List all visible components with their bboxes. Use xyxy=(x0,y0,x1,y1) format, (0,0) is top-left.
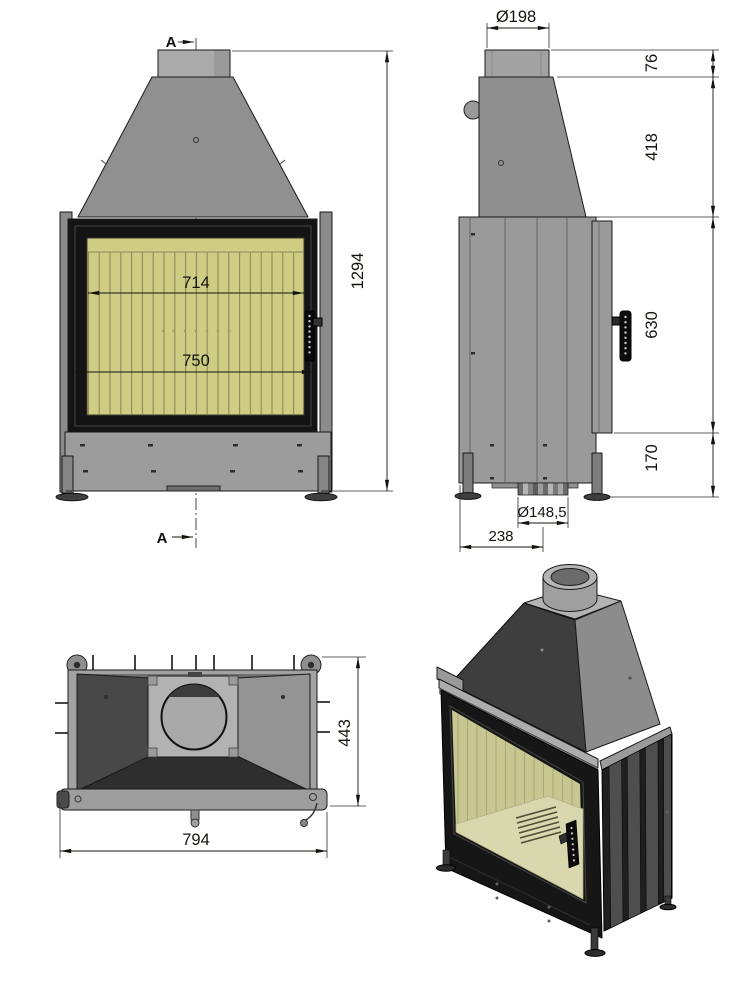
dim-base-height-label: 170 xyxy=(643,444,661,472)
isometric-view xyxy=(437,565,677,957)
smoke-hood xyxy=(78,77,308,217)
dim-glass-width-label: 750 xyxy=(182,352,210,370)
door-handle xyxy=(305,311,322,361)
dim-depth-label: 443 xyxy=(336,719,354,747)
front-bar xyxy=(60,789,327,810)
dim-flue-diameter-label: Ø198 xyxy=(496,8,536,26)
front-latch xyxy=(191,810,199,827)
section-marker-top: A xyxy=(166,34,177,51)
top-view: 443 794 xyxy=(55,655,366,858)
base-front xyxy=(65,432,331,491)
flue-collar-side xyxy=(485,50,549,77)
dim-hood-height-label: 418 xyxy=(643,133,661,161)
dim-flue-diameter: Ø198 xyxy=(487,8,549,48)
section-marker-top-group: A xyxy=(166,34,194,51)
dim-collar-height-label: 76 xyxy=(643,54,661,72)
dim-air-inlet-diameter-label: Ø148,5 xyxy=(517,504,566,521)
dim-overall-height-label: 1294 xyxy=(349,253,367,290)
iso-hood-right-face xyxy=(575,601,660,752)
side-view: Ø198 xyxy=(455,8,719,552)
cable-ball xyxy=(301,820,308,827)
firebox-body-side xyxy=(459,217,596,483)
section-marker-bottom: A xyxy=(157,530,168,547)
door-side-panel xyxy=(592,221,612,433)
base-center-plate xyxy=(167,486,220,491)
section-marker-bottom-group: A xyxy=(157,530,193,547)
air-inlet-duct xyxy=(492,483,578,495)
dim-air-inlet-offset-label: 238 xyxy=(488,528,513,545)
iso-flue-bore xyxy=(551,569,589,586)
smoke-hood-side xyxy=(479,77,586,217)
technical-drawing-canvas: A 7 xyxy=(0,0,742,1000)
dim-firebox-width-label: 714 xyxy=(182,274,210,292)
front-bar-left-cap xyxy=(57,791,69,808)
door-handle-side xyxy=(612,311,631,361)
front-view: A 7 xyxy=(56,34,393,548)
dim-width-label: 794 xyxy=(182,831,210,849)
dim-air-inlet-diameter: Ø148,5 xyxy=(517,497,568,528)
dim-firebox-height-label: 630 xyxy=(643,311,661,339)
fireplace-insert-drawing: A 7 xyxy=(0,0,742,1000)
